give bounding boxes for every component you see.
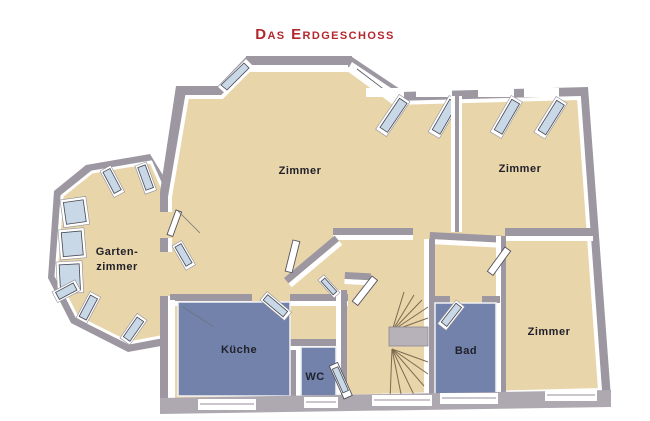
bottom-window [304, 397, 338, 408]
bay-front-cap [246, 56, 352, 65]
label-bad: Bad [455, 345, 477, 357]
label-gartenzimmer-line2: zimmer [96, 261, 138, 273]
label-zimmer-bottom-right: Zimmer [528, 326, 571, 338]
bottom-window [545, 390, 597, 401]
garden-opening-passage [157, 252, 175, 296]
window-sill [524, 88, 559, 97]
stair-landing [389, 327, 428, 346]
wall-corridor-north [333, 228, 413, 240]
label-kueche: Küche [221, 344, 257, 356]
wall-zimmer-br-north [505, 228, 593, 241]
bottom-window [198, 399, 256, 410]
floorplan-page: Das Erdgeschoss [0, 0, 650, 421]
label-zimmer-top-left: Zimmer [279, 165, 322, 177]
wall-kueche-west-face [170, 300, 175, 398]
window-sill [478, 88, 514, 97]
wall-kueche-wc-divider [290, 345, 301, 396]
floorplan-drawing: Zimmer Zimmer Garten- zimmer Küche WC Ba… [0, 0, 650, 421]
label-zimmer-top-right: Zimmer [499, 163, 542, 175]
garden-window-left-1 [60, 196, 90, 227]
label-gartenzimmer-line1: Garten- [96, 246, 139, 258]
wall-top-rooms-divider [451, 96, 462, 232]
bay-front-sill [248, 65, 348, 72]
label-wc: WC [305, 371, 324, 383]
bottom-window [440, 393, 498, 404]
window-sill [416, 88, 452, 97]
garden-window-left-2 [58, 228, 87, 260]
bottom-window [372, 395, 432, 406]
